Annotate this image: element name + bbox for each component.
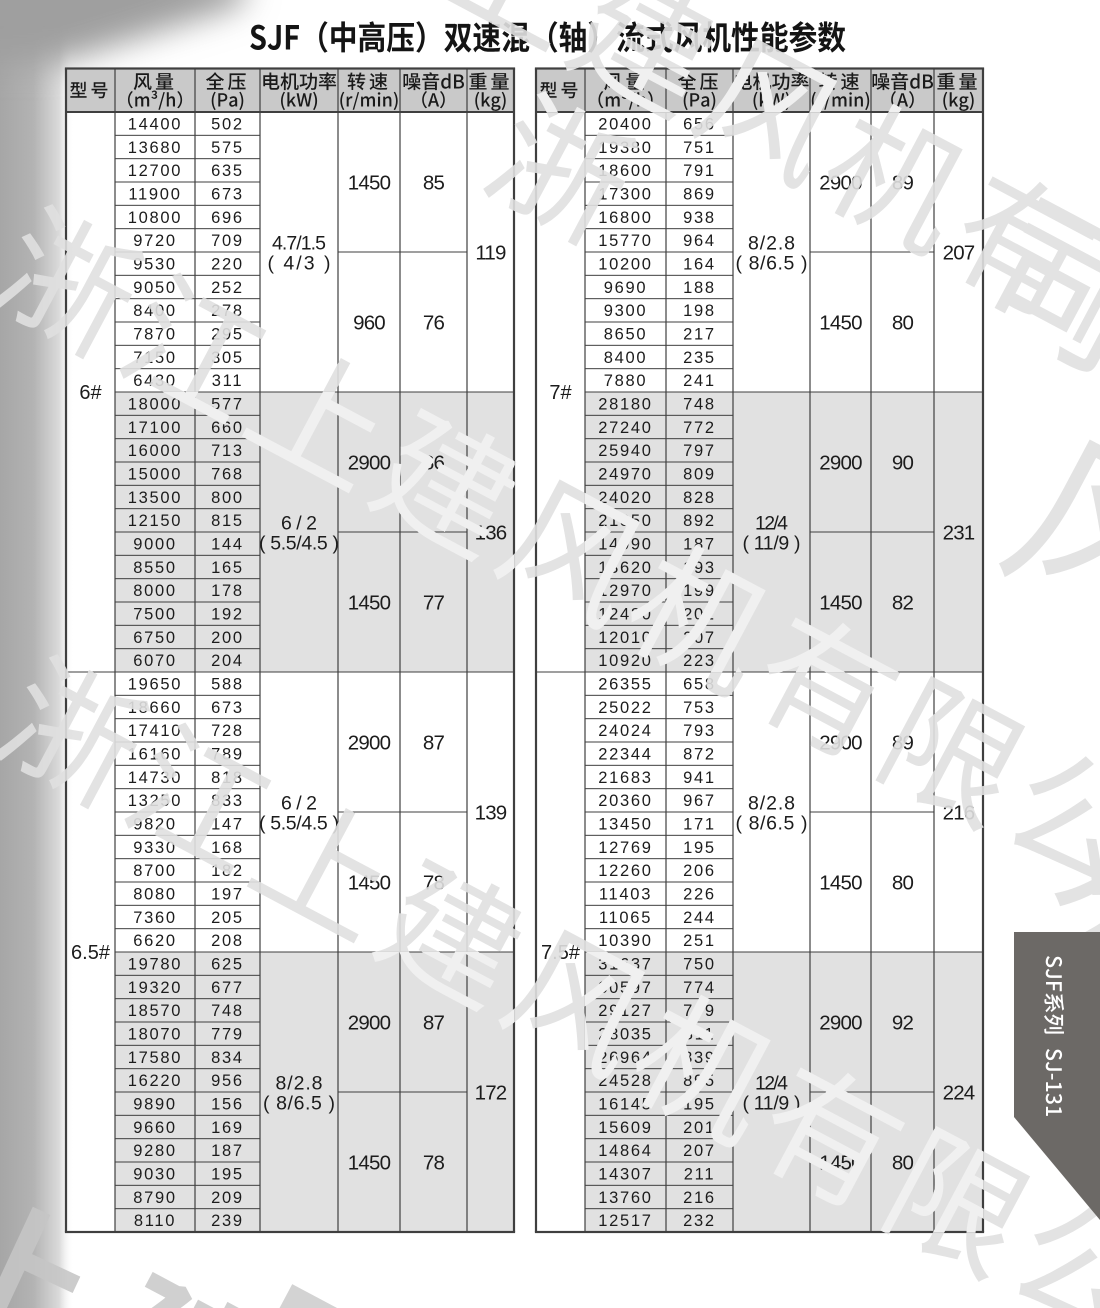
- svg-text:4.7/1.5: 4.7/1.5: [272, 233, 326, 255]
- svg-text:7#: 7#: [549, 382, 572, 404]
- svg-text:( 5.5/4.5 ): ( 5.5/4.5 ): [259, 813, 339, 835]
- svg-text:18570: 18570: [128, 1002, 182, 1020]
- svg-text:625: 625: [211, 956, 244, 974]
- svg-text:772: 772: [683, 419, 716, 437]
- svg-text:800: 800: [211, 489, 244, 507]
- svg-text:19780: 19780: [128, 956, 182, 974]
- svg-text:144: 144: [211, 536, 244, 554]
- svg-text:21683: 21683: [598, 769, 652, 787]
- svg-text:753: 753: [683, 699, 716, 717]
- svg-text:967: 967: [683, 792, 716, 810]
- svg-text:748: 748: [211, 1002, 244, 1020]
- svg-text:8/2.8: 8/2.8: [748, 793, 795, 815]
- svg-text:960: 960: [353, 312, 385, 335]
- svg-text:15770: 15770: [598, 232, 652, 250]
- svg-text:797: 797: [683, 442, 716, 460]
- svg-text:168: 168: [211, 839, 244, 857]
- svg-text:7360: 7360: [133, 909, 177, 927]
- svg-text:2900: 2900: [348, 732, 391, 755]
- svg-text:164: 164: [683, 256, 716, 274]
- svg-text:673: 673: [211, 699, 244, 717]
- svg-text:252: 252: [211, 279, 244, 297]
- svg-text:10390: 10390: [598, 932, 652, 950]
- svg-text:869: 869: [683, 186, 716, 204]
- svg-text:660: 660: [211, 419, 244, 437]
- svg-text:26355: 26355: [598, 676, 652, 694]
- svg-text:172: 172: [475, 1082, 507, 1105]
- svg-text:8/2.8: 8/2.8: [276, 1073, 323, 1095]
- svg-text:791: 791: [683, 162, 716, 180]
- svg-text:80: 80: [892, 1152, 914, 1175]
- svg-text:696: 696: [211, 209, 244, 227]
- svg-text:92: 92: [892, 1012, 914, 1035]
- svg-text:178: 178: [211, 582, 244, 600]
- svg-text:85: 85: [423, 172, 445, 195]
- svg-text:207: 207: [683, 1142, 716, 1160]
- svg-text:25940: 25940: [598, 442, 652, 460]
- svg-text:195: 195: [683, 839, 716, 857]
- svg-text:119: 119: [475, 242, 506, 265]
- svg-text:80: 80: [892, 872, 914, 895]
- svg-text:750: 750: [683, 956, 716, 974]
- svg-text:834: 834: [211, 1049, 244, 1067]
- svg-text:10800: 10800: [128, 209, 182, 227]
- svg-text:16220: 16220: [128, 1072, 182, 1090]
- svg-text:6620: 6620: [133, 932, 177, 950]
- svg-text:13450: 13450: [598, 816, 652, 834]
- svg-text:27240: 27240: [598, 419, 652, 437]
- svg-text:6070: 6070: [133, 652, 177, 670]
- svg-text:( 8/6.5 ): ( 8/6.5 ): [736, 813, 808, 835]
- svg-text:673: 673: [211, 186, 244, 204]
- svg-text:15609: 15609: [598, 1119, 652, 1137]
- svg-text:24020: 24020: [598, 489, 652, 507]
- svg-text:80: 80: [892, 312, 914, 335]
- svg-text:2900: 2900: [348, 452, 391, 475]
- svg-text:( 8/6.5 ): ( 8/6.5 ): [263, 1093, 335, 1115]
- svg-text:17100: 17100: [128, 419, 182, 437]
- svg-text:165: 165: [211, 559, 244, 577]
- svg-text:12/4: 12/4: [755, 1073, 788, 1095]
- svg-text:6/2: 6/2: [281, 793, 317, 815]
- svg-text:11403: 11403: [599, 886, 652, 904]
- svg-text:( 4/3 ): ( 4/3 ): [268, 253, 331, 275]
- svg-text:197: 197: [211, 886, 244, 904]
- svg-text:226: 226: [683, 886, 716, 904]
- svg-text:9300: 9300: [604, 302, 648, 320]
- svg-text:956: 956: [211, 1072, 244, 1090]
- svg-text:14864: 14864: [598, 1142, 652, 1160]
- svg-text:9030: 9030: [133, 1166, 177, 1184]
- svg-text:8650: 8650: [604, 326, 648, 344]
- svg-text:8790: 8790: [133, 1189, 177, 1207]
- svg-text:11065: 11065: [599, 909, 652, 927]
- svg-text:8110: 8110: [134, 1212, 176, 1230]
- svg-text:16000: 16000: [128, 442, 182, 460]
- svg-text:2900: 2900: [348, 1012, 391, 1035]
- svg-text:8550: 8550: [133, 559, 177, 577]
- svg-text:12517: 12517: [598, 1212, 652, 1230]
- svg-text:24970: 24970: [598, 466, 652, 484]
- svg-text:13500: 13500: [128, 489, 182, 507]
- svg-text:892: 892: [683, 512, 716, 530]
- svg-text:677: 677: [211, 979, 244, 997]
- svg-text:139: 139: [475, 802, 507, 825]
- svg-text:78: 78: [423, 1152, 445, 1175]
- svg-text:12769: 12769: [598, 839, 652, 857]
- svg-text:169: 169: [211, 1119, 244, 1137]
- svg-text:9280: 9280: [133, 1142, 177, 1160]
- svg-text:14307: 14307: [598, 1166, 652, 1184]
- svg-text:7880: 7880: [604, 372, 648, 390]
- svg-text:6#: 6#: [79, 382, 102, 404]
- svg-text:6/2: 6/2: [281, 513, 317, 535]
- svg-text:728: 728: [211, 722, 244, 740]
- svg-text:964: 964: [683, 232, 716, 250]
- svg-text:87: 87: [423, 732, 445, 755]
- svg-text:244: 244: [683, 909, 716, 927]
- svg-text:16800: 16800: [598, 209, 652, 227]
- svg-text:206: 206: [683, 862, 716, 880]
- svg-text:6750: 6750: [133, 629, 177, 647]
- svg-text:8700: 8700: [133, 862, 177, 880]
- svg-text:779: 779: [211, 1026, 244, 1044]
- svg-text:220: 220: [211, 256, 244, 274]
- svg-text:9050: 9050: [133, 279, 177, 297]
- svg-text:18000: 18000: [128, 396, 182, 414]
- svg-text:809: 809: [683, 466, 716, 484]
- svg-text:241: 241: [683, 372, 716, 390]
- svg-text:188: 188: [683, 279, 716, 297]
- svg-text:( 11/9 ): ( 11/9 ): [743, 533, 801, 555]
- svg-text:( 5.5/4.5 ): ( 5.5/4.5 ): [259, 533, 339, 555]
- svg-text:9720: 9720: [133, 232, 177, 250]
- svg-text:156: 156: [211, 1096, 244, 1114]
- svg-text:6.5#: 6.5#: [71, 942, 111, 964]
- svg-text:10200: 10200: [598, 256, 652, 274]
- svg-text:8/2.8: 8/2.8: [748, 233, 795, 255]
- svg-text:8000: 8000: [133, 582, 177, 600]
- svg-text:502: 502: [211, 116, 244, 134]
- svg-text:8080: 8080: [133, 886, 177, 904]
- svg-text:20360: 20360: [598, 792, 652, 810]
- svg-text:938: 938: [683, 209, 716, 227]
- svg-text:77: 77: [423, 592, 445, 615]
- svg-text:774: 774: [683, 979, 716, 997]
- svg-text:9690: 9690: [604, 279, 648, 297]
- svg-text:1450: 1450: [348, 592, 391, 615]
- svg-text:13680: 13680: [128, 139, 182, 157]
- svg-text:90: 90: [892, 452, 914, 475]
- svg-text:7870: 7870: [133, 326, 177, 344]
- svg-text:195: 195: [211, 1166, 244, 1184]
- svg-text:1450: 1450: [819, 872, 862, 895]
- svg-text:25022: 25022: [598, 699, 652, 717]
- svg-text:588: 588: [211, 676, 244, 694]
- svg-text:2900: 2900: [819, 452, 862, 475]
- svg-text:635: 635: [211, 162, 244, 180]
- svg-text:713: 713: [211, 442, 244, 460]
- svg-text:768: 768: [211, 466, 244, 484]
- svg-text:204: 204: [211, 652, 244, 670]
- svg-text:217: 217: [683, 326, 716, 344]
- svg-text:311: 311: [212, 372, 243, 390]
- svg-text:198: 198: [683, 302, 716, 320]
- svg-text:793: 793: [683, 722, 716, 740]
- svg-text:232: 232: [683, 1212, 716, 1230]
- svg-text:19650: 19650: [128, 676, 182, 694]
- svg-text:( 8/6.5 ): ( 8/6.5 ): [736, 253, 808, 275]
- svg-text:231: 231: [943, 522, 975, 545]
- svg-text:251: 251: [683, 932, 716, 950]
- svg-text:87: 87: [423, 1012, 445, 1035]
- svg-text:2900: 2900: [819, 1012, 862, 1035]
- svg-text:18070: 18070: [128, 1026, 182, 1044]
- svg-text:201: 201: [683, 1119, 716, 1137]
- svg-text:19320: 19320: [128, 979, 182, 997]
- svg-text:1450: 1450: [348, 1152, 391, 1175]
- svg-text:211: 211: [684, 1166, 715, 1184]
- svg-text:872: 872: [683, 746, 716, 764]
- svg-text:224: 224: [943, 1082, 975, 1105]
- svg-text:76: 76: [423, 312, 445, 335]
- svg-text:147: 147: [211, 816, 244, 834]
- svg-text:82: 82: [892, 592, 914, 615]
- svg-text:223: 223: [683, 652, 716, 670]
- svg-text:815: 815: [211, 512, 244, 530]
- svg-text:9890: 9890: [133, 1096, 177, 1114]
- svg-text:1450: 1450: [348, 172, 391, 195]
- svg-text:7500: 7500: [133, 606, 177, 624]
- svg-text:748: 748: [683, 396, 716, 414]
- svg-text:17410: 17410: [128, 722, 182, 740]
- svg-text:171: 171: [683, 816, 716, 834]
- svg-text:11900: 11900: [128, 186, 181, 204]
- svg-text:828: 828: [683, 489, 716, 507]
- svg-text:192: 192: [211, 606, 244, 624]
- svg-text:187: 187: [211, 1142, 244, 1160]
- svg-text:1450: 1450: [819, 312, 862, 335]
- svg-text:709: 709: [211, 232, 244, 250]
- svg-text:12700: 12700: [128, 162, 182, 180]
- svg-text:200: 200: [211, 629, 244, 647]
- svg-text:575: 575: [211, 139, 244, 157]
- svg-text:24024: 24024: [598, 722, 652, 740]
- svg-text:20400: 20400: [598, 116, 652, 134]
- svg-text:208: 208: [211, 932, 244, 950]
- svg-text:12/4: 12/4: [755, 513, 788, 535]
- svg-text:239: 239: [211, 1212, 244, 1230]
- svg-text:751: 751: [683, 139, 716, 157]
- svg-text:209: 209: [211, 1189, 244, 1207]
- svg-text:17580: 17580: [128, 1049, 182, 1067]
- svg-text:235: 235: [683, 349, 716, 367]
- svg-text:8400: 8400: [604, 349, 648, 367]
- svg-text:15000: 15000: [128, 466, 182, 484]
- svg-text:12260: 12260: [598, 862, 652, 880]
- svg-text:1450: 1450: [819, 592, 862, 615]
- svg-text:22344: 22344: [598, 746, 652, 764]
- svg-text:216: 216: [683, 1189, 716, 1207]
- svg-text:9660: 9660: [133, 1119, 177, 1137]
- svg-text:14400: 14400: [128, 116, 182, 134]
- svg-text:207: 207: [943, 242, 975, 265]
- svg-text:28180: 28180: [598, 396, 652, 414]
- svg-text:941: 941: [683, 769, 716, 787]
- svg-text:205: 205: [211, 909, 244, 927]
- svg-text:9000: 9000: [133, 536, 177, 554]
- svg-text:13760: 13760: [598, 1189, 652, 1207]
- svg-text:12150: 12150: [128, 512, 182, 530]
